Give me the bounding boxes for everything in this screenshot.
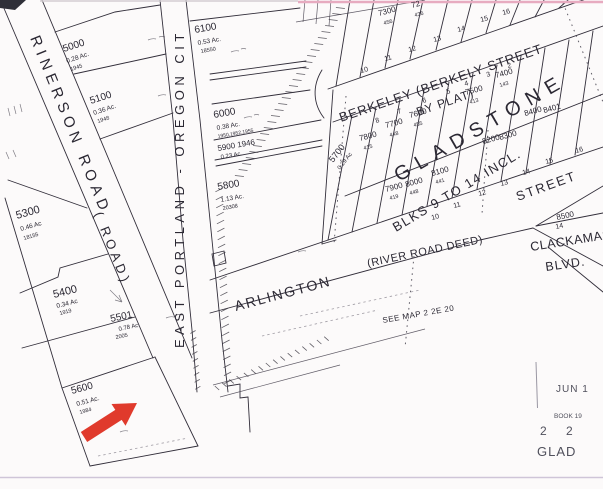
stamp-book: BOOK 19 [554,413,582,420]
stamp-number-left: 2 [540,424,547,438]
stamp-glad: GLAD [537,444,576,459]
stamp-date: JUN 1 [556,384,589,395]
scanned-plat-map: RINERSON ROAD( ROAD)EAST PORTLAND - OREG… [0,0,603,489]
stamp-number-right: 2 [566,424,573,438]
map-svg: RINERSON ROAD( ROAD)EAST PORTLAND - OREG… [0,0,603,489]
road-label-east-portland-oregon-city: EAST PORTLAND - OREGON CIT [172,29,187,348]
